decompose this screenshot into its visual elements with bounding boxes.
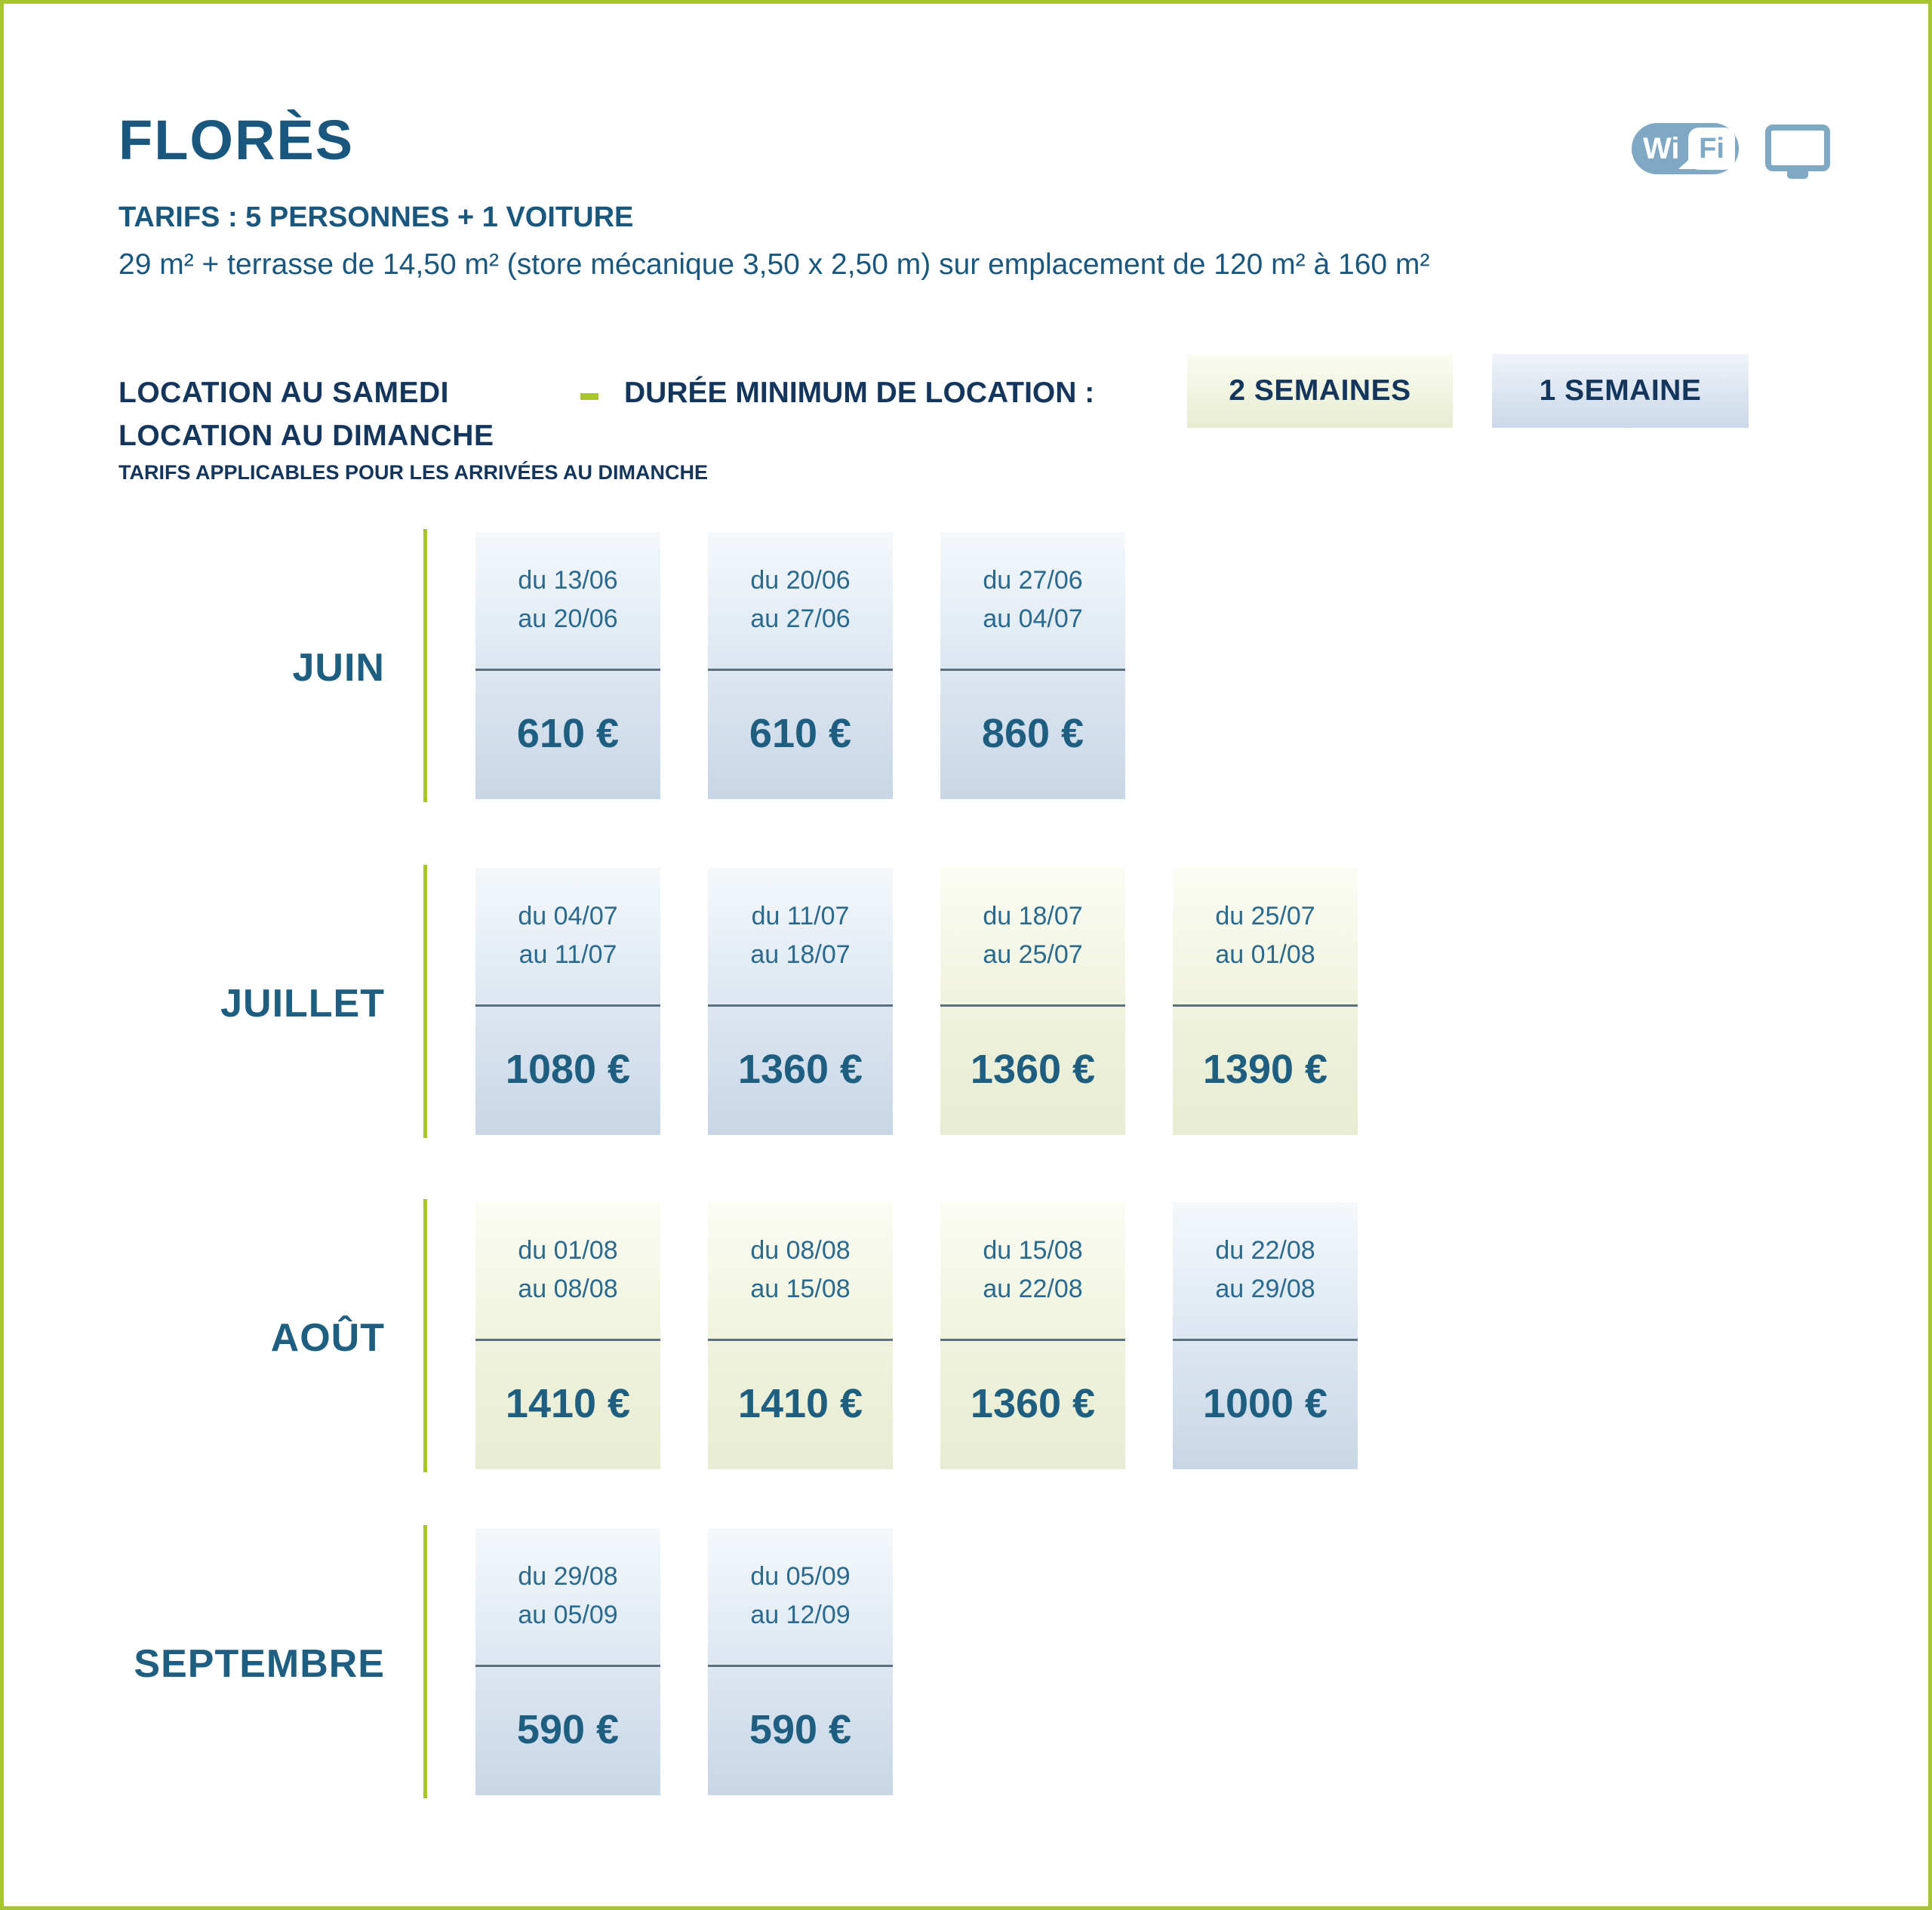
tv-screen [1765, 125, 1830, 171]
row-accent-line [423, 865, 427, 1138]
tariff-page: FLORÈS Wi Fi TARIFS : 5 PERSONNES + 1 VO… [0, 0, 1932, 1910]
month-label: SEPTEMBRE [79, 1641, 385, 1687]
date-to: au 11/07 [519, 940, 617, 970]
month-label: AOÛT [79, 1315, 385, 1361]
card-date-range: du 25/07 au 01/08 [1173, 868, 1358, 1004]
date-to: au 05/09 [518, 1601, 617, 1630]
price-card: du 22/08 au 29/08 1000 € [1173, 1202, 1358, 1469]
wifi-wi-label: Wi [1632, 132, 1680, 166]
location-note: TARIFS APPLICABLES POUR LES ARRIVÉES AU … [118, 461, 708, 484]
date-from: du 08/08 [750, 1236, 850, 1266]
date-from: du 15/08 [983, 1236, 1082, 1266]
card-price: 860 € [940, 669, 1125, 799]
row-accent-line [423, 1525, 427, 1798]
row-accent-line [423, 529, 427, 802]
tv-icon [1765, 125, 1830, 179]
price-card: du 05/09 au 12/09 590 € [708, 1528, 893, 1795]
month-row: JUIN du 13/06 au 20/06 610 € du 20/06 au… [4, 532, 1928, 799]
date-from: du 04/07 [518, 902, 617, 931]
date-from: du 13/06 [518, 566, 617, 595]
date-from: du 11/07 [752, 902, 850, 931]
date-to: au 22/08 [983, 1275, 1082, 1304]
month-label: JUIN [79, 645, 385, 690]
date-from: du 27/06 [983, 566, 1082, 595]
card-price: 590 € [475, 1665, 660, 1795]
card-date-range: du 29/08 au 05/09 [475, 1528, 660, 1665]
date-to: au 01/08 [1215, 940, 1315, 970]
price-card: du 11/07 au 18/07 1360 € [708, 868, 893, 1135]
card-price: 1390 € [1173, 1004, 1358, 1135]
date-to: au 04/07 [983, 604, 1082, 634]
date-from: du 25/07 [1215, 902, 1315, 931]
wifi-bubble-tail [1678, 154, 1695, 169]
date-to: au 27/06 [750, 604, 850, 634]
card-price: 1000 € [1173, 1339, 1358, 1469]
card-date-range: du 15/08 au 22/08 [940, 1202, 1125, 1339]
card-date-range: du 22/08 au 29/08 [1173, 1202, 1358, 1339]
price-card: du 01/08 au 08/08 1410 € [475, 1202, 660, 1469]
card-date-range: du 13/06 au 20/06 [475, 532, 660, 669]
month-row: SEPTEMBRE du 29/08 au 05/09 590 € du 05/… [4, 1528, 1928, 1795]
card-date-range: du 27/06 au 04/07 [940, 532, 1125, 669]
card-price: 1360 € [708, 1004, 893, 1135]
date-from: du 18/07 [983, 902, 1082, 931]
wifi-icon: Wi Fi [1632, 123, 1739, 174]
card-date-range: du 08/08 au 15/08 [708, 1202, 893, 1339]
card-price: 1360 € [940, 1339, 1125, 1469]
location-saturday-label: LOCATION AU SAMEDI [118, 377, 449, 410]
tariff-subtitle: TARIFS : 5 PERSONNES + 1 VOITURE [118, 201, 633, 234]
minimum-duration-label: DURÉE MINIMUM DE LOCATION : [624, 377, 1094, 410]
tv-stand [1787, 170, 1808, 179]
accent-dash [580, 393, 598, 400]
row-accent-line [423, 1199, 427, 1472]
location-sunday-label: LOCATION AU DIMANCHE [118, 420, 494, 453]
date-from: du 29/08 [518, 1562, 617, 1592]
wifi-fi-label: Fi [1688, 128, 1735, 170]
date-from: du 22/08 [1215, 1236, 1315, 1266]
month-label: JUILLET [79, 981, 385, 1026]
price-card: du 27/06 au 04/07 860 € [940, 532, 1125, 799]
card-date-range: du 11/07 au 18/07 [708, 868, 893, 1004]
date-from: du 05/09 [750, 1562, 850, 1592]
card-date-range: du 20/06 au 27/06 [708, 532, 893, 669]
card-date-range: du 18/07 au 25/07 [940, 868, 1125, 1004]
price-card: du 25/07 au 01/08 1390 € [1173, 868, 1358, 1135]
date-to: au 08/08 [518, 1275, 617, 1304]
date-from: du 01/08 [518, 1236, 617, 1266]
date-to: au 20/06 [518, 604, 617, 634]
price-card: du 18/07 au 25/07 1360 € [940, 868, 1125, 1135]
date-to: au 18/07 [750, 940, 850, 970]
date-from: du 20/06 [750, 566, 850, 595]
card-price: 1080 € [475, 1004, 660, 1135]
card-date-range: du 04/07 au 11/07 [475, 868, 660, 1004]
date-to: au 29/08 [1215, 1275, 1315, 1304]
month-row: JUILLET du 04/07 au 11/07 1080 € du 11/0… [4, 868, 1928, 1135]
pitch-description: 29 m² + terrasse de 14,50 m² (store méca… [118, 248, 1429, 281]
wifi-fi-text: Fi [1699, 133, 1724, 165]
card-price: 590 € [708, 1665, 893, 1795]
card-date-range: du 05/09 au 12/09 [708, 1528, 893, 1665]
price-card: du 20/06 au 27/06 610 € [708, 532, 893, 799]
card-price: 1410 € [475, 1339, 660, 1469]
price-card: du 04/07 au 11/07 1080 € [475, 868, 660, 1135]
price-card: du 29/08 au 05/09 590 € [475, 1528, 660, 1795]
card-price: 1410 € [708, 1339, 893, 1469]
price-card: du 15/08 au 22/08 1360 € [940, 1202, 1125, 1469]
badge-two-weeks: 2 SEMAINES [1187, 354, 1453, 428]
card-price: 610 € [475, 669, 660, 799]
card-date-range: du 01/08 au 08/08 [475, 1202, 660, 1339]
badge-one-week: 1 SEMAINE [1492, 354, 1749, 428]
date-to: au 15/08 [750, 1275, 850, 1304]
card-price: 610 € [708, 669, 893, 799]
date-to: au 12/09 [750, 1601, 850, 1630]
page-title: FLORÈS [118, 108, 354, 172]
date-to: au 25/07 [983, 940, 1082, 970]
price-card: du 08/08 au 15/08 1410 € [708, 1202, 893, 1469]
card-price: 1360 € [940, 1004, 1125, 1135]
price-card: du 13/06 au 20/06 610 € [475, 532, 660, 799]
month-row: AOÛT du 01/08 au 08/08 1410 € du 08/08 a… [4, 1202, 1928, 1469]
